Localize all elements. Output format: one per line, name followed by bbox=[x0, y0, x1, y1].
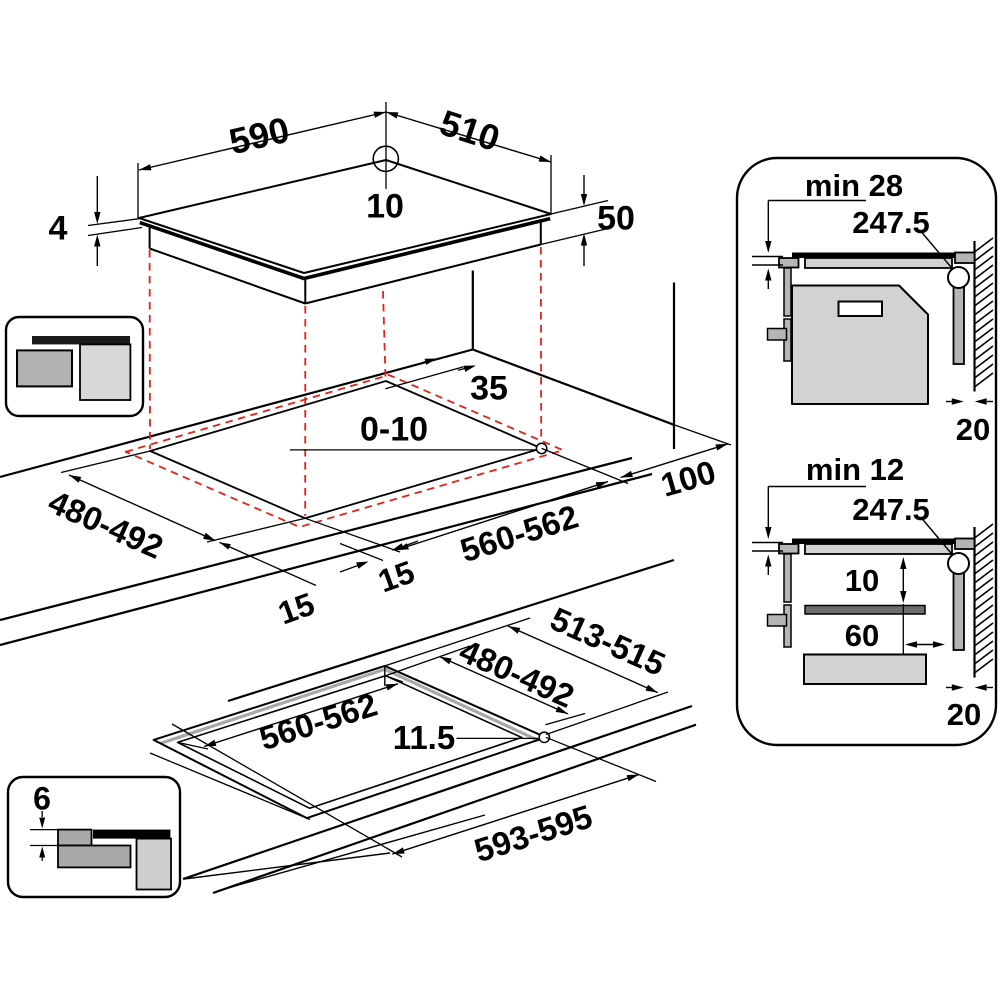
svg-text:20: 20 bbox=[956, 412, 990, 447]
svg-text:50: 50 bbox=[597, 199, 635, 237]
svg-text:10: 10 bbox=[366, 187, 404, 225]
svg-text:4: 4 bbox=[49, 209, 68, 247]
svg-text:10: 10 bbox=[845, 563, 879, 598]
svg-text:11.5: 11.5 bbox=[393, 719, 455, 756]
svg-text:min 12: min 12 bbox=[806, 452, 904, 487]
svg-text:60: 60 bbox=[845, 618, 879, 653]
svg-text:0-10: 0-10 bbox=[360, 410, 428, 448]
svg-text:35: 35 bbox=[470, 369, 508, 407]
svg-text:20: 20 bbox=[947, 697, 981, 732]
svg-text:min 28: min 28 bbox=[805, 168, 903, 203]
svg-text:247.5: 247.5 bbox=[852, 492, 930, 527]
svg-text:247.5: 247.5 bbox=[852, 205, 930, 240]
